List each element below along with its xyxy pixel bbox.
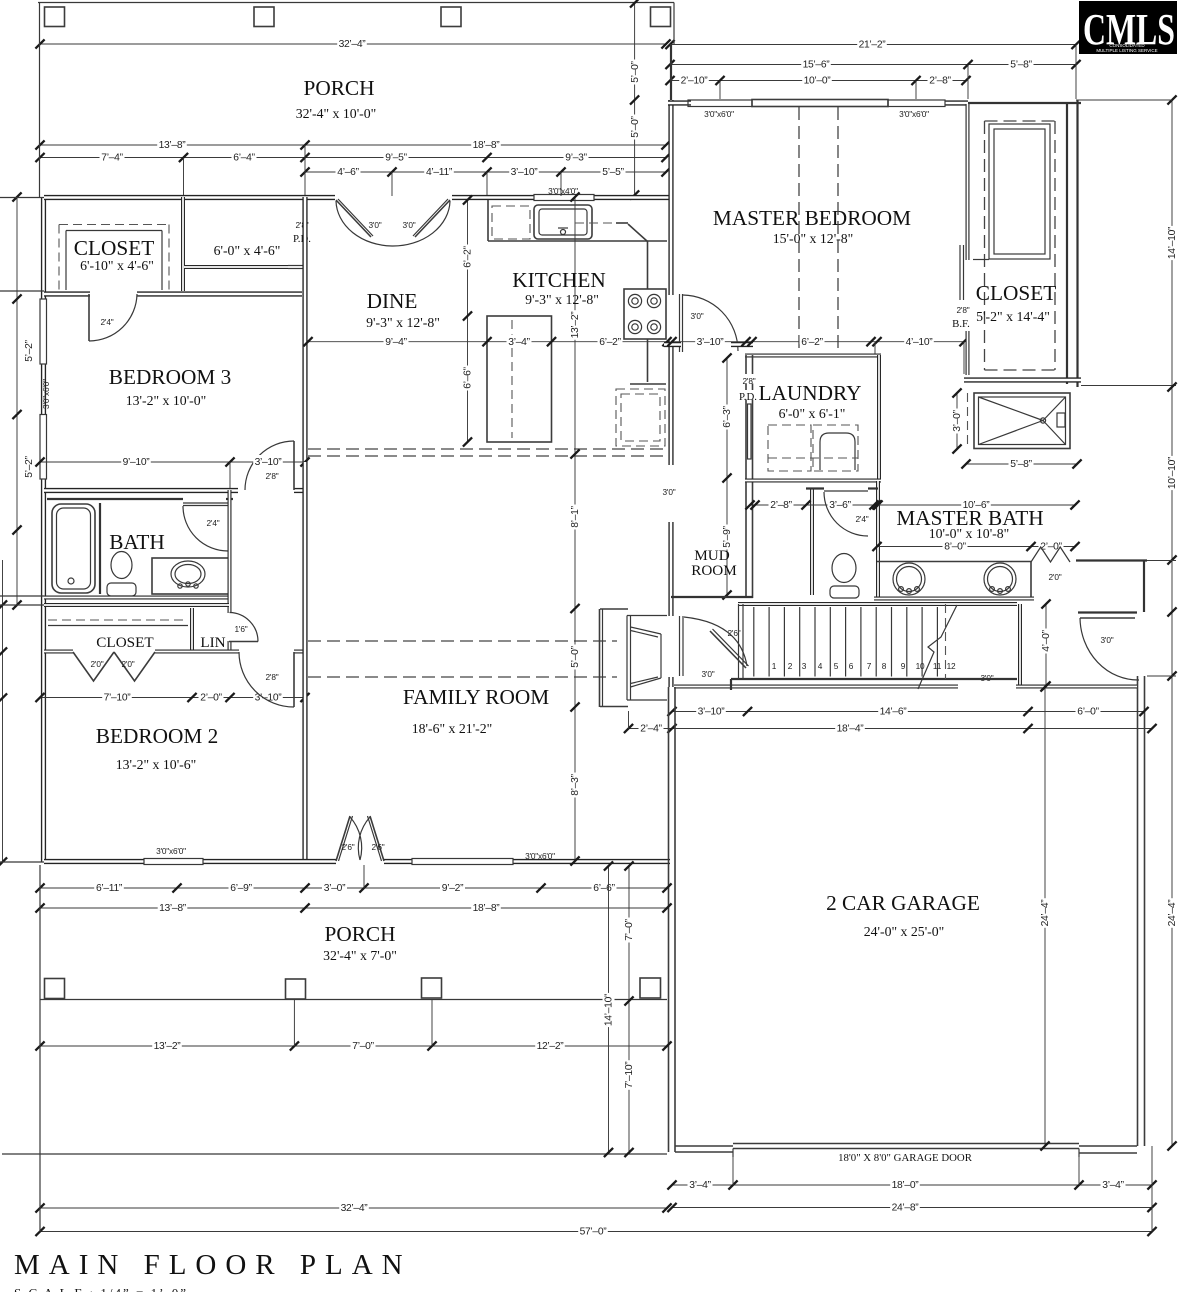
svg-text:6’–2”: 6’–2” <box>599 337 621 348</box>
svg-text:13'-2" x 10'-6": 13'-2" x 10'-6" <box>116 757 197 772</box>
svg-text:32’–4”: 32’–4” <box>339 39 367 50</box>
svg-text:3'0"x6'0": 3'0"x6'0" <box>899 109 929 119</box>
svg-text:2 CAR GARAGE: 2 CAR GARAGE <box>826 891 980 915</box>
svg-text:1'6": 1'6" <box>235 624 248 634</box>
svg-text:MAIN FLOOR PLAN: MAIN FLOOR PLAN <box>14 1249 412 1281</box>
svg-text:CLOSET: CLOSET <box>976 281 1056 305</box>
svg-text:3’–4”: 3’–4” <box>508 337 530 348</box>
svg-text:6’–2”: 6’–2” <box>801 337 823 348</box>
svg-text:3'0": 3'0" <box>369 220 382 230</box>
svg-text:18’–8”: 18’–8” <box>473 140 501 151</box>
svg-text:5’–0”: 5’–0” <box>630 60 641 82</box>
svg-text:4’–6”: 4’–6” <box>337 167 359 178</box>
svg-text:3’–4”: 3’–4” <box>689 1180 711 1191</box>
svg-text:15’–6”: 15’–6” <box>803 60 831 71</box>
svg-text:3’–0”: 3’–0” <box>952 409 963 431</box>
svg-text:6'-10" x 4'-6": 6'-10" x 4'-6" <box>80 258 154 273</box>
svg-text:3'0"x6'0": 3'0"x6'0" <box>525 851 555 861</box>
svg-text:3'0"x6'0": 3'0"x6'0" <box>156 846 186 856</box>
svg-text:2’–8”: 2’–8” <box>770 500 792 511</box>
svg-text:3’–4”: 3’–4” <box>1102 1180 1124 1191</box>
svg-text:2'4": 2'4" <box>101 317 114 327</box>
svg-text:3'0"x4'0": 3'0"x4'0" <box>548 186 578 196</box>
svg-text:24’–4”: 24’–4” <box>1167 899 1178 927</box>
svg-text:3’–0”: 3’–0” <box>324 883 346 894</box>
svg-text:15'-0" x 12'-8": 15'-0" x 12'-8" <box>773 231 854 246</box>
svg-text:7’–4”: 7’–4” <box>101 153 123 164</box>
svg-text:6’–9”: 6’–9” <box>230 883 252 894</box>
svg-text:BATH: BATH <box>109 530 165 554</box>
svg-text:3’–10”: 3’–10” <box>698 707 726 718</box>
svg-text:9’–2”: 9’–2” <box>442 883 464 894</box>
svg-text:24’–8”: 24’–8” <box>892 1203 920 1214</box>
svg-text:4’–10”: 4’–10” <box>906 337 934 348</box>
svg-text:9: 9 <box>901 661 906 671</box>
svg-text:3'0": 3'0" <box>663 487 676 497</box>
svg-text:10’–0”: 10’–0” <box>804 76 832 87</box>
svg-text:5’–5”: 5’–5” <box>602 167 624 178</box>
svg-text:3'0"x6'0": 3'0"x6'0" <box>41 379 51 409</box>
svg-text:6’–6”: 6’–6” <box>593 883 615 894</box>
svg-text:10’–10”: 10’–10” <box>1167 456 1178 489</box>
svg-text:KITCHEN: KITCHEN <box>512 268 605 292</box>
svg-text:6’–4”: 6’–4” <box>233 153 255 164</box>
svg-text:12’–2”: 12’–2” <box>537 1041 565 1052</box>
svg-text:S C A L E : 1/4” = 1’-0”: S C A L E : 1/4” = 1’-0” <box>14 1286 188 1292</box>
svg-text:9'-3" x 12'-8": 9'-3" x 12'-8" <box>525 292 599 307</box>
svg-text:8: 8 <box>882 661 887 671</box>
svg-text:24'-0" x 25'-0": 24'-0" x 25'-0" <box>864 924 945 939</box>
svg-text:1: 1 <box>772 661 777 671</box>
svg-text:9’–5”: 9’–5” <box>385 153 407 164</box>
svg-text:12: 12 <box>947 661 956 671</box>
svg-text:18’–8”: 18’–8” <box>473 903 501 914</box>
svg-text:BEDROOM 3: BEDROOM 3 <box>109 365 231 389</box>
svg-text:2: 2 <box>788 661 793 671</box>
svg-text:2’–0”: 2’–0” <box>200 693 222 704</box>
svg-text:5’–8”: 5’–8” <box>1010 459 1032 470</box>
svg-text:9'-3" x 12'-8": 9'-3" x 12'-8" <box>366 315 440 330</box>
svg-text:6'-0" x 4'-6": 6'-0" x 4'-6" <box>214 243 281 258</box>
svg-text:8’–1”: 8’–1” <box>570 505 581 527</box>
svg-text:7’–10”: 7’–10” <box>624 1061 635 1089</box>
svg-text:2'0": 2'0" <box>122 659 135 669</box>
svg-text:4’–0”: 4’–0” <box>1041 629 1052 651</box>
svg-text:2'6": 2'6" <box>342 842 355 852</box>
svg-text:3'0": 3'0" <box>403 220 416 230</box>
svg-text:FAMILY ROOM: FAMILY ROOM <box>403 685 549 709</box>
svg-text:ROOM: ROOM <box>691 562 737 579</box>
svg-text:MASTER BEDROOM: MASTER BEDROOM <box>713 206 911 230</box>
svg-text:3'0": 3'0" <box>702 669 715 679</box>
svg-text:5’–0”: 5’–0” <box>570 645 581 667</box>
svg-text:11: 11 <box>933 661 942 671</box>
svg-text:MULTIPLE LISTING SERVICE: MULTIPLE LISTING SERVICE <box>1096 48 1157 53</box>
svg-text:2'6": 2'6" <box>372 842 385 852</box>
svg-text:5’–8”: 5’–8” <box>1010 60 1032 71</box>
svg-text:8’–0”: 8’–0” <box>944 542 966 553</box>
svg-text:6’–6”: 6’–6” <box>463 366 474 388</box>
svg-text:3’–10”: 3’–10” <box>697 337 725 348</box>
svg-text:8’–3”: 8’–3” <box>570 773 581 795</box>
svg-text:3'0"x6'0": 3'0"x6'0" <box>704 109 734 119</box>
svg-text:7: 7 <box>867 661 872 671</box>
svg-text:18'0" X 8'0" GARAGE DOOR: 18'0" X 8'0" GARAGE DOOR <box>838 1152 973 1164</box>
svg-text:18’–0”: 18’–0” <box>892 1180 920 1191</box>
svg-text:CLOSET: CLOSET <box>74 236 154 260</box>
svg-text:CLOSET: CLOSET <box>96 634 154 651</box>
svg-text:3’–10”: 3’–10” <box>255 457 283 468</box>
svg-text:14’–10”: 14’–10” <box>1167 226 1178 259</box>
svg-text:2’–10”: 2’–10” <box>681 76 709 87</box>
svg-text:LIN: LIN <box>200 634 225 651</box>
svg-text:32’–4”: 32’–4” <box>341 1203 369 1214</box>
svg-text:6’–2”: 6’–2” <box>463 245 474 267</box>
svg-text:LAUNDRY: LAUNDRY <box>759 381 862 405</box>
svg-text:32'-4" x 7'-0": 32'-4" x 7'-0" <box>323 948 397 963</box>
svg-text:9’–10”: 9’–10” <box>123 457 151 468</box>
svg-text:3'0": 3'0" <box>1101 635 1114 645</box>
svg-text:P.D.: P.D. <box>739 391 757 403</box>
svg-text:6’–11”: 6’–11” <box>96 883 123 894</box>
svg-text:3’–10”: 3’–10” <box>511 167 539 178</box>
svg-text:3’–6”: 3’–6” <box>829 500 851 511</box>
svg-text:2’–8”: 2’–8” <box>929 76 951 87</box>
svg-text:2'4": 2'4" <box>207 518 220 528</box>
svg-text:13’–2”: 13’–2” <box>570 311 581 339</box>
svg-text:3'0": 3'0" <box>691 311 704 321</box>
svg-text:7’–0”: 7’–0” <box>352 1041 374 1052</box>
svg-text:10: 10 <box>916 661 925 671</box>
svg-text:5: 5 <box>834 661 839 671</box>
svg-text:6: 6 <box>849 661 854 671</box>
svg-text:2'8": 2'8" <box>743 376 756 386</box>
svg-text:14’–10”: 14’–10” <box>604 993 615 1026</box>
svg-text:3: 3 <box>802 661 807 671</box>
svg-text:5’–2”: 5’–2” <box>24 455 35 477</box>
svg-text:14’–6”: 14’–6” <box>880 707 908 718</box>
svg-text:5’–9”: 5’–9” <box>722 525 733 547</box>
svg-text:DINE: DINE <box>367 289 418 313</box>
svg-text:5’–0”: 5’–0” <box>630 115 641 137</box>
svg-text:9’–3”: 9’–3” <box>565 153 587 164</box>
svg-text:32'-4" x 10'-0": 32'-4" x 10'-0" <box>296 106 377 121</box>
svg-text:4: 4 <box>818 661 823 671</box>
svg-text:B.F.: B.F. <box>952 318 970 330</box>
svg-text:PORCH: PORCH <box>324 922 395 946</box>
svg-text:BEDROOM 2: BEDROOM 2 <box>96 724 218 748</box>
svg-text:6’–0”: 6’–0” <box>1077 707 1099 718</box>
svg-text:2'8": 2'8" <box>266 471 279 481</box>
svg-text:10'-0" x 10'-8": 10'-0" x 10'-8" <box>929 526 1010 541</box>
svg-text:5'-2" x 14'-4": 5'-2" x 14'-4" <box>976 309 1050 324</box>
svg-text:P.D.: P.D. <box>293 233 311 245</box>
svg-text:21’–2”: 21’–2” <box>859 40 887 51</box>
svg-text:2'0": 2'0" <box>91 659 104 669</box>
svg-text:PORCH: PORCH <box>303 76 374 100</box>
svg-text:24’–4”: 24’–4” <box>1040 899 1051 927</box>
svg-text:9’–4”: 9’–4” <box>385 337 407 348</box>
svg-text:57’–0”: 57’–0” <box>580 1227 608 1238</box>
svg-text:13’–8”: 13’–8” <box>159 903 187 914</box>
svg-text:6'-0" x 6'-1": 6'-0" x 6'-1" <box>779 406 846 421</box>
svg-text:4’–11”: 4’–11” <box>426 167 453 178</box>
svg-text:13’–8”: 13’–8” <box>159 140 187 151</box>
svg-text:13'-2" x 10'-0": 13'-2" x 10'-0" <box>126 393 207 408</box>
svg-text:2'0": 2'0" <box>1049 572 1062 582</box>
svg-text:6’–3”: 6’–3” <box>722 405 733 427</box>
svg-text:5’–2”: 5’–2” <box>24 339 35 361</box>
svg-text:2’–4”: 2’–4” <box>640 724 662 735</box>
svg-text:10’–6”: 10’–6” <box>963 500 991 511</box>
svg-text:2'8": 2'8" <box>266 672 279 682</box>
svg-text:2'4": 2'4" <box>856 514 869 524</box>
svg-text:18'-6" x 21'-2": 18'-6" x 21'-2" <box>412 721 493 736</box>
svg-text:7’–10”: 7’–10” <box>104 693 132 704</box>
svg-text:7’–0”: 7’–0” <box>624 918 635 940</box>
svg-text:2'8": 2'8" <box>957 305 970 315</box>
svg-text:18’–4”: 18’–4” <box>837 724 865 735</box>
svg-text:13’–2”: 13’–2” <box>154 1041 182 1052</box>
